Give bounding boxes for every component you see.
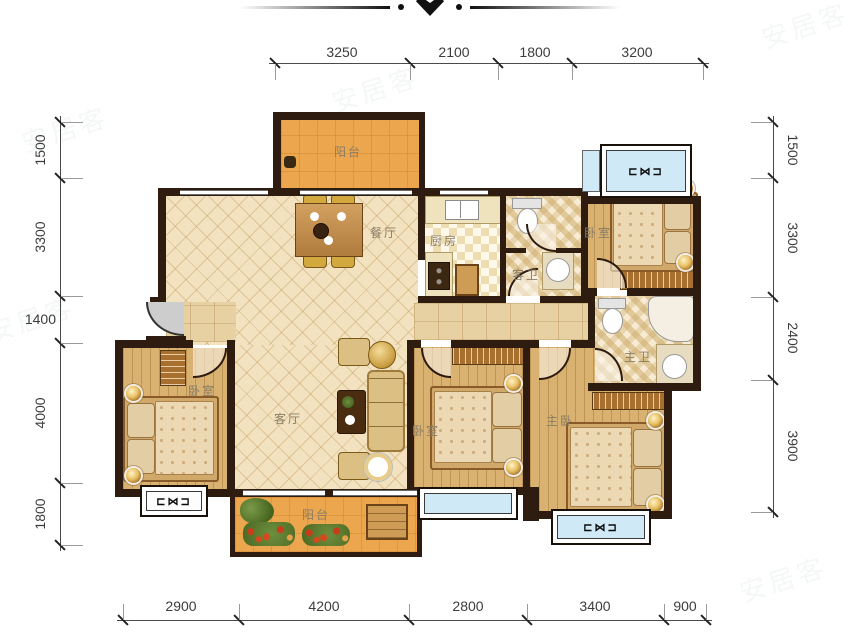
- bay-window-glyph: ⊏⋈⊐: [146, 491, 202, 511]
- wall-segment: [500, 188, 506, 303]
- dim-guide: [706, 604, 707, 620]
- watermark: 安居客: [756, 0, 850, 56]
- room-label-kitchen: 厨房: [430, 232, 458, 249]
- dim-label: 3400: [575, 598, 615, 614]
- window: [440, 190, 488, 195]
- dim-label: 1500: [32, 120, 48, 180]
- wall-segment: [115, 489, 143, 497]
- room-label-dining: 餐厅: [370, 224, 398, 241]
- lamp: [678, 255, 693, 270]
- balcony-cabinet: [366, 504, 408, 540]
- dim-label: 3300: [32, 207, 48, 267]
- room-label-master-bedroom: 主卧: [546, 412, 574, 429]
- entrance-door-leaf: [146, 336, 186, 341]
- bed-quilt: [434, 391, 492, 463]
- dim-guide: [572, 64, 573, 80]
- floor-plate: [363, 452, 393, 482]
- dim-label: 3250: [322, 44, 362, 60]
- dim-guide: [61, 343, 83, 344]
- wall-segment: [273, 112, 425, 120]
- wall-segment: [506, 248, 526, 253]
- wall-segment: [693, 196, 701, 296]
- wall-segment: [273, 112, 281, 196]
- dim-guide: [498, 64, 499, 80]
- dim-guide: [61, 178, 83, 179]
- dim-guide: [527, 604, 528, 620]
- bay-window: ⊏⋈⊐: [600, 144, 692, 198]
- window: [582, 150, 600, 192]
- wall-segment: [581, 288, 597, 296]
- flower-bed: [302, 524, 350, 546]
- wall-segment: [115, 340, 123, 497]
- bed-quilt: [570, 427, 632, 507]
- dim-guide: [409, 604, 410, 620]
- pillow: [492, 392, 522, 427]
- dim-label: 2400: [785, 308, 801, 368]
- dim-guide: [61, 122, 83, 123]
- ornament-dot: [456, 4, 462, 10]
- wall-segment: [418, 296, 506, 303]
- lamp: [126, 386, 141, 401]
- dim-guide: [751, 178, 773, 179]
- sliding-door: [333, 490, 417, 496]
- sofa: [367, 370, 405, 452]
- plant-bush: [240, 498, 274, 524]
- wall-segment: [230, 497, 235, 557]
- stove: [428, 262, 450, 290]
- wall-segment: [556, 248, 581, 253]
- dim-label: 4000: [32, 383, 48, 443]
- bed-quilt: [155, 401, 214, 475]
- lamp: [126, 468, 141, 483]
- dim-label: 2100: [434, 44, 474, 60]
- balcony-plant: [284, 156, 296, 168]
- bay-window-glyph: ⊏⋈⊐: [606, 150, 686, 192]
- room-label-bedroom-ne: 卧室: [584, 224, 612, 241]
- dim-guide: [751, 297, 773, 298]
- wall-segment: [571, 340, 595, 348]
- dim-guide: [61, 545, 83, 546]
- ornament-dot: [398, 4, 404, 10]
- dim-label: 1800: [515, 44, 555, 60]
- dining-pot: [313, 223, 329, 239]
- kitchen-cabinet: [455, 264, 479, 296]
- wall-segment: [230, 552, 422, 557]
- wall-segment: [418, 188, 425, 260]
- dim-guide: [239, 604, 240, 620]
- dim-guide: [703, 64, 704, 80]
- wardrobe: [592, 392, 672, 410]
- dim-label: 900: [665, 598, 705, 614]
- wall-segment: [115, 340, 193, 348]
- floorplan-canvas: 安居客 安居客 安居客 安居客 安居客: [0, 0, 850, 638]
- pillow: [127, 403, 155, 438]
- room-label-balcony-bottom: 阳台: [302, 506, 330, 523]
- sink-divider: [460, 200, 461, 218]
- dim-label: 2900: [161, 598, 201, 614]
- ornament-line: [470, 6, 620, 9]
- bed-quilt: [613, 196, 663, 266]
- wall-segment: [227, 340, 235, 497]
- hallway-floor: [414, 303, 595, 340]
- window: [300, 190, 412, 195]
- dim-label: 3300: [785, 208, 801, 268]
- pillow: [633, 429, 662, 467]
- wall-segment: [627, 288, 701, 296]
- table-dish: [345, 415, 355, 425]
- pillow: [492, 428, 522, 463]
- bay-window: ⊏⋈⊐: [551, 509, 651, 545]
- dining-table: [295, 203, 363, 257]
- room-label-guest-bath: 客卫: [512, 266, 540, 283]
- dim-label: 4200: [304, 598, 344, 614]
- ornament-line: [240, 6, 390, 9]
- dim-guide: [123, 604, 124, 620]
- dim-label: 1800: [32, 484, 48, 544]
- dim-guide: [61, 296, 83, 297]
- table-plant: [342, 396, 354, 408]
- wardrobe: [452, 345, 528, 365]
- basin: [546, 258, 570, 282]
- watermark: 安居客: [326, 57, 423, 120]
- lamp: [506, 460, 521, 475]
- wall-segment: [158, 188, 166, 302]
- window: [418, 487, 518, 520]
- window: [180, 190, 268, 195]
- plate: [337, 212, 346, 221]
- lamp: [506, 376, 521, 391]
- wall-segment: [588, 383, 701, 391]
- room-label-bedroom-w: 卧室: [188, 382, 216, 399]
- lamp: [648, 413, 663, 428]
- dim-guide: [410, 64, 411, 80]
- sliding-door: [243, 490, 325, 496]
- room-label-master-bath: 主卫: [624, 348, 652, 365]
- dim-guide: [61, 483, 83, 484]
- toilet: [602, 308, 623, 334]
- wall-segment: [407, 340, 414, 497]
- dim-label: 1500: [785, 120, 801, 180]
- dim-guide: [751, 122, 773, 123]
- kitchen-sink: [445, 200, 479, 220]
- dim-guide: [751, 512, 773, 513]
- watermark: 安居客: [734, 547, 831, 610]
- plate: [310, 212, 319, 221]
- dim-label: 1400: [12, 311, 56, 327]
- dim-line-top: [269, 63, 709, 64]
- ornament-diamond: [416, 0, 444, 16]
- dim-line-bottom: [117, 620, 712, 621]
- wall-segment: [581, 196, 588, 303]
- wall-segment: [419, 112, 425, 196]
- room-label-living: 客厅: [274, 410, 302, 427]
- bay-window-glyph: ⊏⋈⊐: [557, 515, 645, 539]
- flower-bed: [243, 522, 295, 546]
- wardrobe: [160, 350, 186, 386]
- wall-segment: [523, 340, 530, 490]
- basin: [662, 354, 687, 379]
- room-label-bedroom-s: 卧室: [412, 422, 440, 439]
- dim-label: 3200: [617, 44, 657, 60]
- wall-segment: [693, 288, 701, 391]
- side-table: [368, 341, 396, 369]
- dim-guide: [751, 380, 773, 381]
- wall-segment: [664, 391, 672, 519]
- room-label-balcony-top: 阳台: [334, 143, 362, 160]
- dim-label: 3900: [785, 416, 801, 476]
- dim-label: 2800: [448, 598, 488, 614]
- entrance-door-arc: [146, 302, 184, 336]
- bay-window: ⊏⋈⊐: [140, 485, 208, 517]
- window-pane: [424, 493, 512, 514]
- dim-guide: [275, 64, 276, 80]
- armchair: [338, 338, 370, 366]
